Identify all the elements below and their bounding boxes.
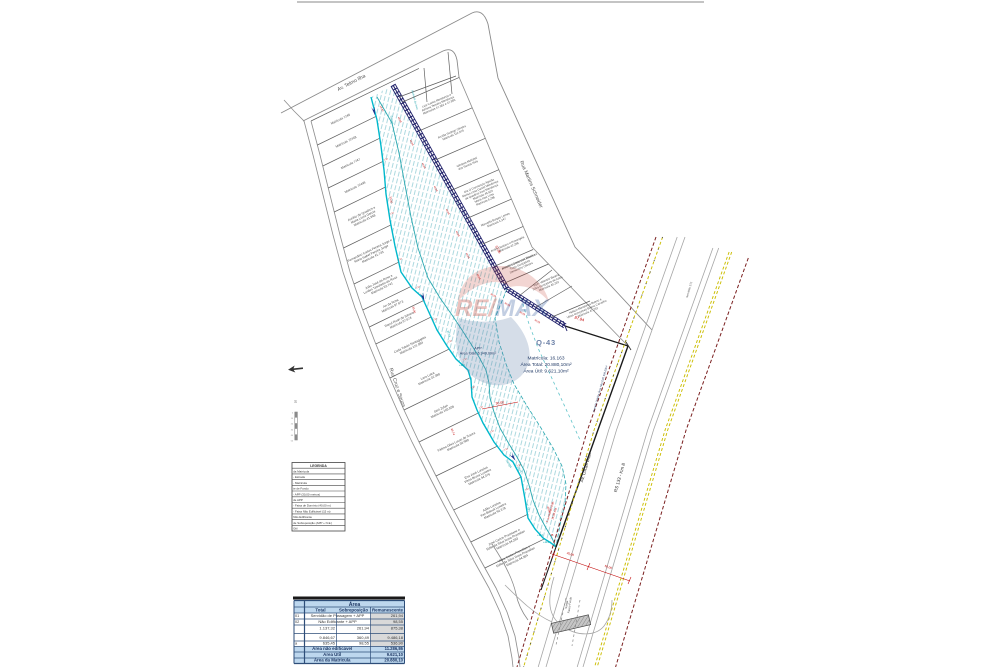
svg-text:de Sobreposição (APP + N.E.): de Sobreposição (APP + N.E.)	[293, 521, 332, 525]
svg-text:Área da Matrícula: Área da Matrícula	[314, 658, 351, 663]
svg-text:- Matrícula: - Matrícula	[293, 481, 307, 485]
svg-text:- Faixa de Domínio (40,00 m): - Faixa de Domínio (40,00 m)	[293, 504, 331, 508]
svg-text:RE/MAX: RE/MAX	[455, 295, 550, 322]
svg-text:- APP (30,00 metros): - APP (30,00 metros)	[293, 492, 320, 496]
svg-text:Área não edificável: Área não edificável	[312, 646, 352, 651]
svg-text:+116: +116	[459, 363, 465, 367]
svg-text:Área Útil: Área Útil	[323, 652, 341, 657]
svg-text:de APP: de APP	[293, 498, 303, 502]
svg-text:Útil: Útil	[293, 527, 298, 531]
svg-text:- Faixa Não Edificável (15 m): - Faixa Não Edificável (15 m)	[293, 509, 330, 513]
svg-text:875,38: 875,38	[391, 626, 404, 631]
svg-text:+113: +113	[537, 533, 543, 537]
svg-text:9.846,67: 9.846,67	[319, 635, 335, 640]
svg-text:261,94: 261,94	[391, 613, 404, 618]
svg-text:02: 02	[295, 620, 299, 624]
svg-text:+113: +113	[543, 540, 549, 544]
svg-text:Não Edificante + APP: Não Edificante + APP	[318, 619, 357, 624]
svg-text:Sobreposição: Sobreposição	[339, 608, 368, 613]
svg-text:20.880,10: 20.880,10	[384, 658, 403, 663]
svg-text:Não Edificante: Não Edificante	[293, 515, 312, 519]
svg-text:635,45: 635,45	[323, 641, 336, 646]
svg-text:98,55: 98,55	[359, 641, 370, 646]
svg-text:te de Fundo: te de Fundo	[293, 487, 309, 491]
svg-text:536,90: 536,90	[391, 641, 404, 646]
svg-text:360,49: 360,49	[357, 635, 370, 640]
svg-text:Total: Total	[315, 608, 325, 613]
svg-text:da Matrícula: da Matrícula	[293, 470, 309, 474]
svg-text:98,55: 98,55	[393, 619, 404, 624]
svg-text:1.137,32: 1.137,32	[319, 626, 335, 631]
svg-text:9.621,10: 9.621,10	[387, 652, 404, 657]
svg-text:Servidão de Passagem + APP: Servidão de Passagem + APP	[311, 613, 365, 618]
svg-text:01: 01	[295, 614, 299, 618]
svg-text:Remanescente: Remanescente	[372, 608, 404, 613]
svg-text:11.286,86: 11.286,86	[385, 646, 404, 651]
svg-text:Q-43: Q-43	[536, 338, 556, 347]
svg-text:- Estrada: - Estrada	[293, 475, 305, 479]
svg-text:Matrícula: 16.163Área Total: 2: Matrícula: 16.163Área Total: 20.880,10m²…	[520, 356, 572, 375]
svg-text:LEGENDA: LEGENDA	[310, 464, 327, 468]
svg-text:S: S	[294, 399, 297, 404]
svg-text:9.486,18: 9.486,18	[387, 635, 403, 640]
svg-text:261,94: 261,94	[357, 626, 370, 631]
